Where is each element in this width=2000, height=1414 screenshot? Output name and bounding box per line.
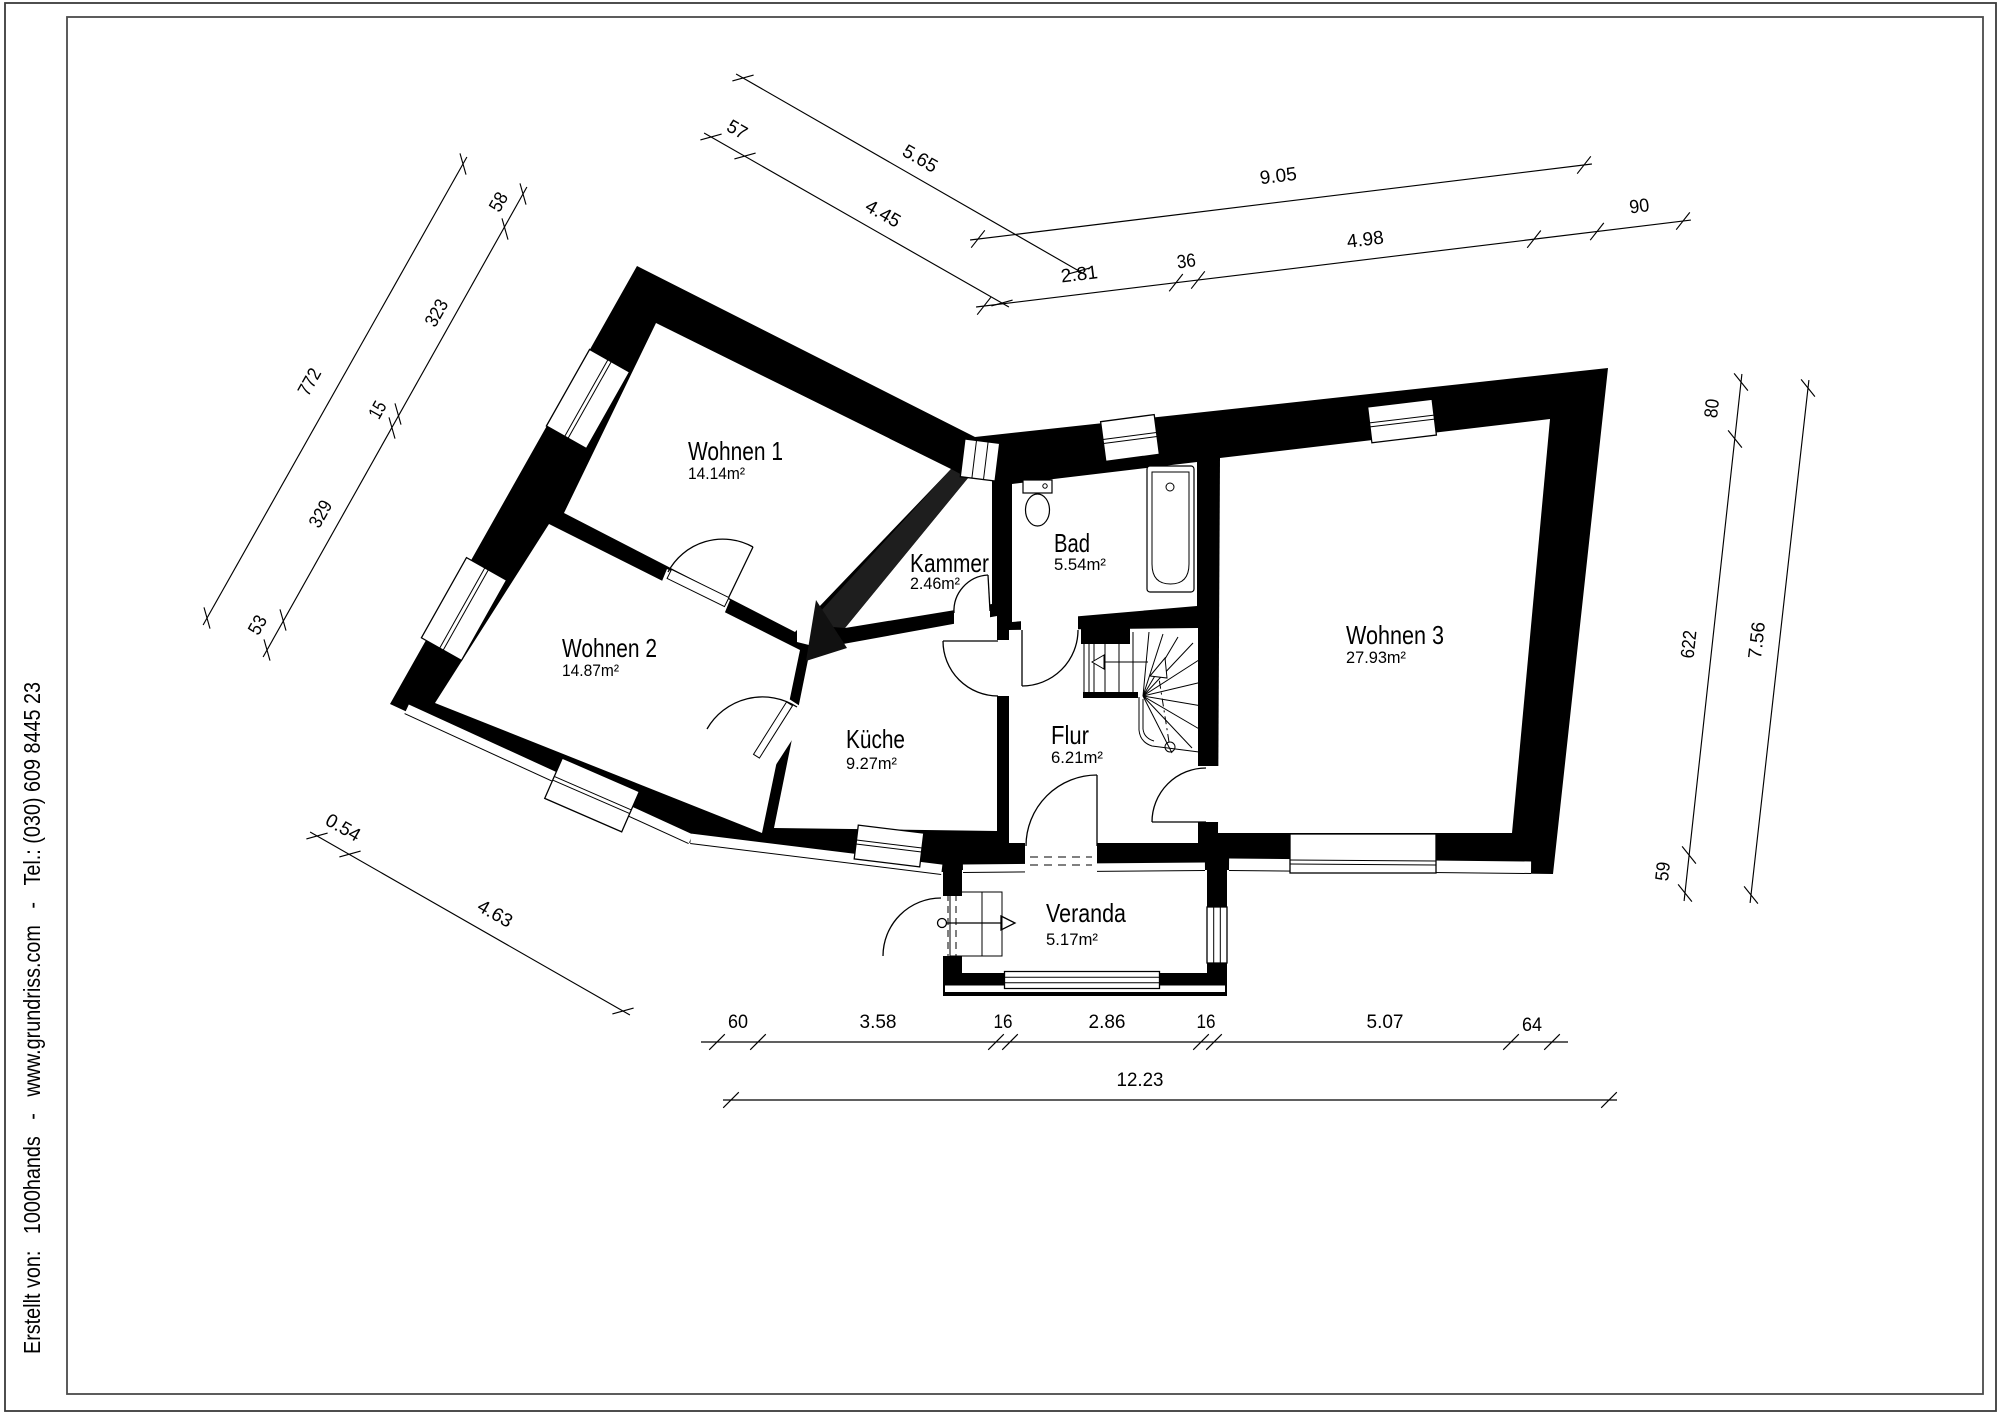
svg-text:9.27m²: 9.27m² (846, 754, 897, 773)
svg-text:Flur: Flur (1051, 720, 1089, 750)
svg-text:Wohnen 2: Wohnen 2 (562, 633, 657, 663)
svg-text:2.86: 2.86 (1089, 1012, 1126, 1033)
svg-text:4.98: 4.98 (1346, 227, 1385, 252)
svg-text:14.87m²: 14.87m² (562, 661, 619, 680)
svg-text:5.54m²: 5.54m² (1054, 555, 1106, 574)
svg-text:59: 59 (1652, 861, 1675, 882)
svg-text:80: 80 (1701, 398, 1724, 419)
svg-text:60: 60 (728, 1012, 748, 1033)
svg-text:16: 16 (1197, 1012, 1216, 1033)
svg-text:90: 90 (1628, 195, 1650, 218)
svg-text:6.21m²: 6.21m² (1051, 748, 1103, 767)
svg-text:622: 622 (1678, 629, 1702, 659)
svg-text:16: 16 (994, 1012, 1013, 1033)
svg-text:Wohnen 3: Wohnen 3 (1346, 620, 1444, 650)
svg-text:Wohnen 1: Wohnen 1 (688, 436, 783, 466)
svg-text:Veranda: Veranda (1046, 898, 1126, 928)
svg-text:2.81: 2.81 (1060, 262, 1099, 287)
svg-text:27.93m²: 27.93m² (1346, 648, 1406, 667)
svg-text:9.05: 9.05 (1259, 164, 1298, 189)
svg-text:Bad: Bad (1054, 528, 1090, 558)
svg-text:5.17m²: 5.17m² (1046, 930, 1098, 949)
svg-text:7.56: 7.56 (1745, 621, 1770, 660)
svg-text:36: 36 (1176, 250, 1197, 273)
svg-text:14.14m²: 14.14m² (688, 464, 745, 483)
svg-text:2.46m²: 2.46m² (910, 574, 960, 593)
svg-text:3.58: 3.58 (860, 1012, 897, 1033)
svg-text:5.07: 5.07 (1367, 1012, 1404, 1033)
svg-text:Küche: Küche (846, 724, 905, 754)
svg-text:64: 64 (1522, 1015, 1542, 1036)
svg-text:12.23: 12.23 (1117, 1070, 1164, 1091)
svg-text:Erstellt von: 1000hands -: Erstellt von: 1000hands - www.grundriss.… (19, 682, 45, 1354)
